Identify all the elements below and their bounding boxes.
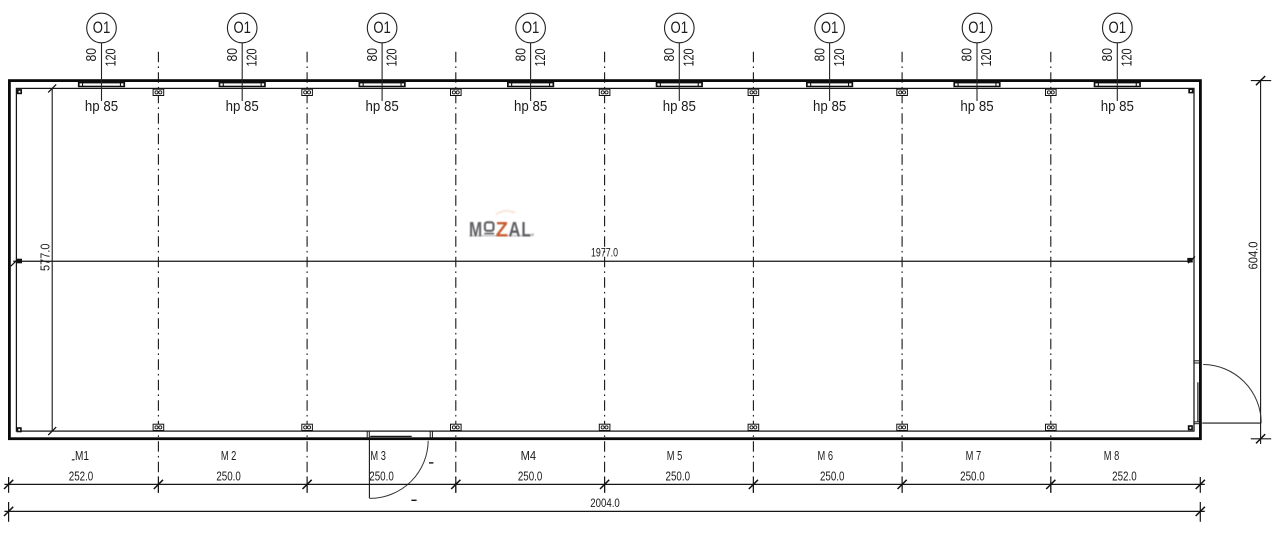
svg-text:120: 120 [1119,49,1136,67]
svg-text:O1: O1 [233,19,251,37]
svg-text:hp 85: hp 85 [663,98,696,115]
svg-text:O1: O1 [93,19,111,37]
svg-text:250.0: 250.0 [820,470,845,484]
svg-text:120: 120 [243,49,260,67]
svg-text:M 8: M 8 [1104,448,1120,463]
svg-text:M 3: M 3 [370,448,386,463]
svg-text:O1: O1 [821,19,839,37]
svg-text:A: A [509,217,521,241]
svg-text:M 7: M 7 [966,448,982,463]
svg-text:L: L [521,217,531,241]
svg-text:hp 85: hp 85 [514,98,547,115]
svg-text:252.0: 252.0 [69,470,94,484]
svg-text:250.0: 250.0 [518,470,543,484]
svg-text:250.0: 250.0 [666,470,691,484]
svg-text:80: 80 [364,48,381,62]
svg-text:Z: Z [496,217,508,241]
svg-text:hp 85: hp 85 [366,98,399,115]
svg-text:252.0: 252.0 [1112,470,1137,484]
svg-text:80: 80 [224,48,241,62]
svg-text:120: 120 [103,49,120,67]
svg-text:M 6: M 6 [818,448,834,463]
svg-text:1977.0: 1977.0 [591,246,618,260]
svg-text:O1: O1 [373,19,391,37]
svg-text:O1: O1 [968,19,986,37]
svg-text:hp 85: hp 85 [1101,98,1134,115]
svg-text:hp 85: hp 85 [226,98,259,115]
svg-text:hp 85: hp 85 [960,98,993,115]
svg-text:120: 120 [978,49,995,67]
svg-text:80: 80 [1099,48,1116,62]
svg-text:250.0: 250.0 [960,470,985,484]
svg-text:hp 85: hp 85 [85,98,118,115]
svg-text:M4: M4 [521,448,537,463]
svg-text:120: 120 [831,49,848,67]
svg-text:2004.0: 2004.0 [590,496,620,510]
svg-text:250.0: 250.0 [216,470,241,484]
svg-text:80: 80 [661,48,678,62]
svg-text:O1: O1 [522,19,540,37]
svg-text:80: 80 [811,48,828,62]
svg-text:80: 80 [83,48,100,62]
svg-text:M 5: M 5 [667,448,683,463]
svg-text:O1: O1 [671,19,689,37]
svg-text:120: 120 [681,49,698,67]
svg-text:80: 80 [512,48,529,62]
svg-text:M: M [469,217,482,241]
svg-text:604.0: 604.0 [1246,242,1261,270]
svg-text:hp 85: hp 85 [813,98,846,115]
svg-text:O1: O1 [1109,19,1127,37]
svg-text:M1: M1 [75,448,89,463]
svg-text:80: 80 [959,48,976,62]
svg-text:120: 120 [532,49,549,67]
svg-text:120: 120 [383,49,400,67]
svg-text:250.0: 250.0 [369,470,394,484]
svg-text:577.0: 577.0 [38,244,53,272]
svg-text:M 2: M 2 [221,448,237,463]
